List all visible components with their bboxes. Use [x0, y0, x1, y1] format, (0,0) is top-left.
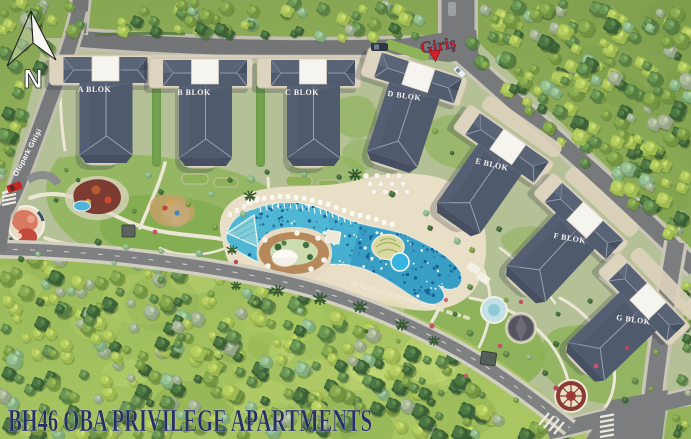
svg-text:A BLOK: A BLOK: [78, 85, 112, 94]
svg-text:BH46 OBA PRIVILEGE APARTMENTS: BH46 OBA PRIVILEGE APARTMENTS: [8, 402, 372, 438]
svg-text:B BLOK: B BLOK: [177, 88, 211, 97]
svg-text:C BLOK: C BLOK: [285, 88, 319, 97]
svg-text:N: N: [23, 64, 43, 94]
